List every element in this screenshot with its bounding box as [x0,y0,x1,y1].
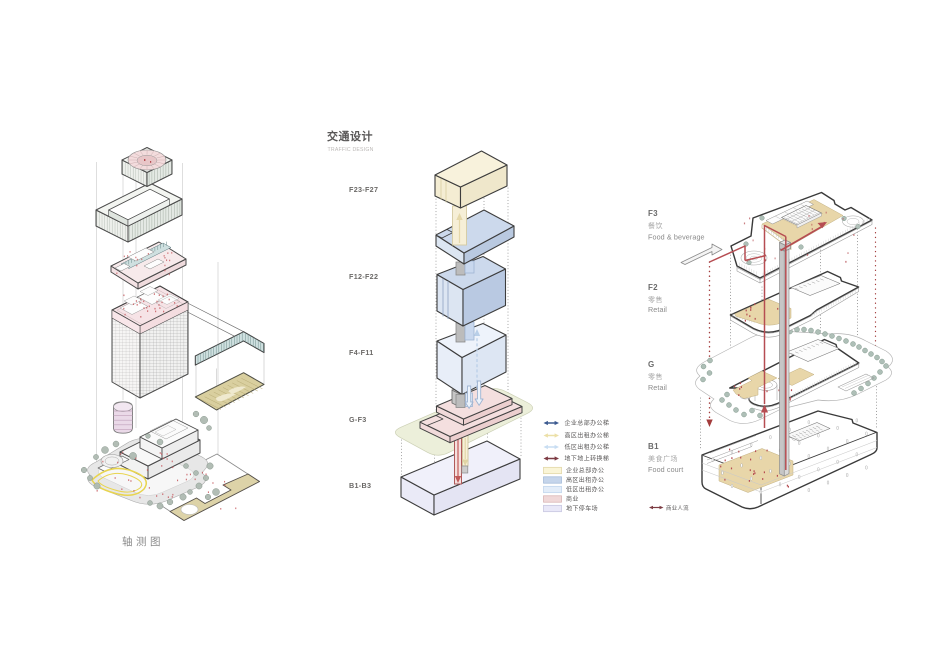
svg-text:低区出租办公梯: 低区出租办公梯 [565,443,610,451]
svg-text:Retail: Retail [648,305,667,314]
svg-text:企业总部办公梯: 企业总部办公梯 [565,419,610,427]
svg-text:F2: F2 [648,283,658,292]
svg-text:F23-F27: F23-F27 [349,185,378,194]
svg-text:零售: 零售 [648,295,663,304]
svg-text:商业: 商业 [566,495,579,503]
svg-text:餐饮: 餐饮 [648,221,663,230]
svg-text:G: G [648,360,655,369]
svg-text:低区出租办公: 低区出租办公 [566,486,604,494]
svg-text:F3: F3 [648,209,658,218]
svg-text:F12-F22: F12-F22 [349,272,378,281]
svg-text:F4-F11: F4-F11 [349,348,374,357]
svg-text:地下地上转换梯: 地下地上转换梯 [565,455,610,463]
svg-text:交通设计: 交通设计 [327,129,373,143]
svg-text:轴测图: 轴测图 [122,535,164,548]
svg-text:TRAFFIC DESIGN: TRAFFIC DESIGN [328,147,374,153]
svg-text:G-F3: G-F3 [349,415,367,424]
svg-text:美食广场: 美食广场 [648,454,678,463]
svg-text:零售: 零售 [648,372,663,381]
svg-text:企业总部办公: 企业总部办公 [566,467,604,475]
svg-text:B1: B1 [648,442,659,451]
svg-text:地下停车场: 地下停车场 [566,505,598,513]
svg-text:高区出租办公: 高区出租办公 [566,476,604,484]
svg-text:Food court: Food court [648,465,683,474]
svg-text:B1-B3: B1-B3 [349,481,371,490]
svg-text:Retail: Retail [648,383,667,392]
svg-text:高区出租办公梯: 高区出租办公梯 [565,432,610,440]
svg-text:Food & beverage: Food & beverage [648,233,705,242]
svg-text:商业人流: 商业人流 [666,504,689,512]
